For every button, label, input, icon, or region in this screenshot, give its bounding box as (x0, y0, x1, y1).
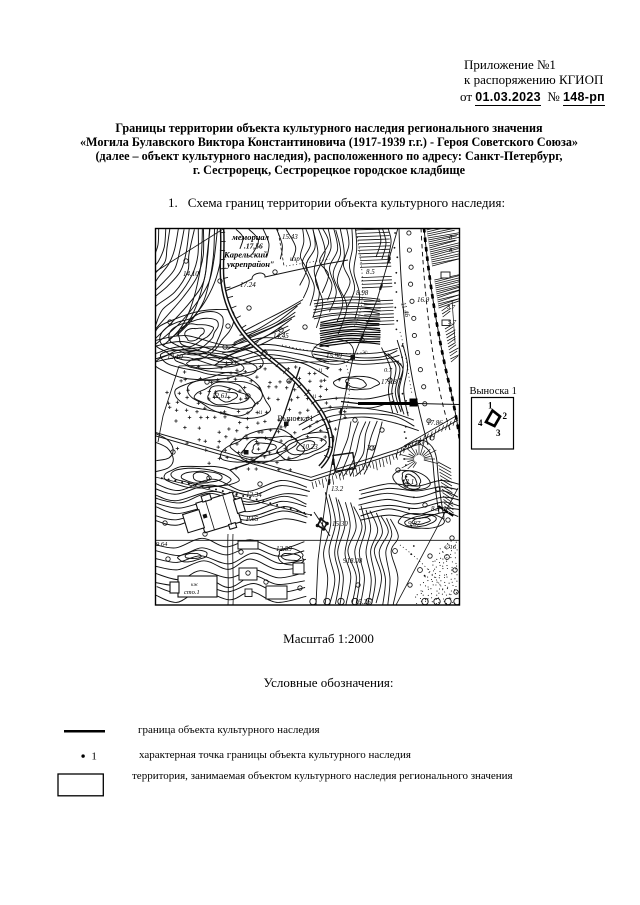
svg-text:12.59: 12.59 (276, 545, 292, 553)
svg-text:13.1: 13.1 (402, 478, 414, 486)
svg-text:8.5: 8.5 (431, 505, 440, 513)
svg-text:Выноска 1: Выноска 1 (470, 386, 517, 397)
svg-text:Карельский: Карельский (223, 250, 268, 260)
svg-text:8.98: 8.98 (356, 289, 369, 297)
svg-text:3.7: 3.7 (446, 304, 456, 311)
svg-text:4: 4 (478, 418, 483, 428)
svg-text:∅16: ∅16 (444, 544, 457, 551)
svg-text:5.7: 5.7 (448, 319, 457, 326)
svg-text:2: 2 (503, 411, 508, 421)
svg-text:мемориал: мемориал (231, 232, 270, 242)
svg-text:12.61: 12.61 (212, 392, 228, 400)
svg-text:1: 1 (91, 751, 97, 763)
svg-text:918.08: 918.08 (343, 557, 363, 565)
svg-text:8.: 8. (449, 247, 454, 254)
svg-text:11: 11 (318, 369, 323, 374)
svg-text:11: 11 (312, 395, 317, 400)
svg-text:0.7: 0.7 (384, 367, 393, 374)
svg-text:21: 21 (362, 351, 367, 356)
svg-text:17.18: 17.18 (381, 378, 397, 386)
svg-text:8.5: 8.5 (366, 268, 375, 276)
svg-text:Выноска 1: Выноска 1 (278, 414, 314, 423)
svg-text:17.86: 17.86 (427, 419, 443, 427)
svg-text:2.0: 2.0 (367, 444, 376, 452)
svg-text:15.90: 15.90 (326, 352, 342, 360)
svg-text:изр: изр (290, 255, 300, 263)
svg-text:9.87: 9.87 (408, 520, 421, 528)
svg-text:8.: 8. (449, 234, 454, 241)
svg-text:3: 3 (496, 428, 501, 438)
svg-text:9.64: 9.64 (156, 541, 168, 548)
svg-text:1: 1 (488, 401, 493, 411)
svg-text:14.10: 14.10 (183, 270, 199, 278)
svg-text:укрепрайон″: укрепрайон″ (226, 259, 275, 269)
svg-text:12.34: 12.34 (246, 491, 262, 499)
svg-text:13.10: 13.10 (167, 353, 183, 361)
svg-text:15.30: 15.30 (332, 520, 348, 528)
svg-text:11: 11 (258, 411, 263, 416)
svg-text:10.23: 10.23 (302, 443, 318, 451)
svg-text:15.43: 15.43 (282, 233, 298, 241)
svg-text:сто.1: сто.1 (184, 589, 200, 596)
svg-text:11.46: 11.46 (399, 301, 411, 318)
svg-text:16.9: 16.9 (417, 296, 430, 304)
svg-text:Р.65: Р.65 (245, 515, 259, 523)
svg-text:кж: кж (191, 583, 198, 588)
svg-text:14.45: 14.45 (273, 332, 289, 340)
svg-text:17.24: 17.24 (240, 281, 256, 289)
svg-text:13.2: 13.2 (331, 485, 344, 493)
